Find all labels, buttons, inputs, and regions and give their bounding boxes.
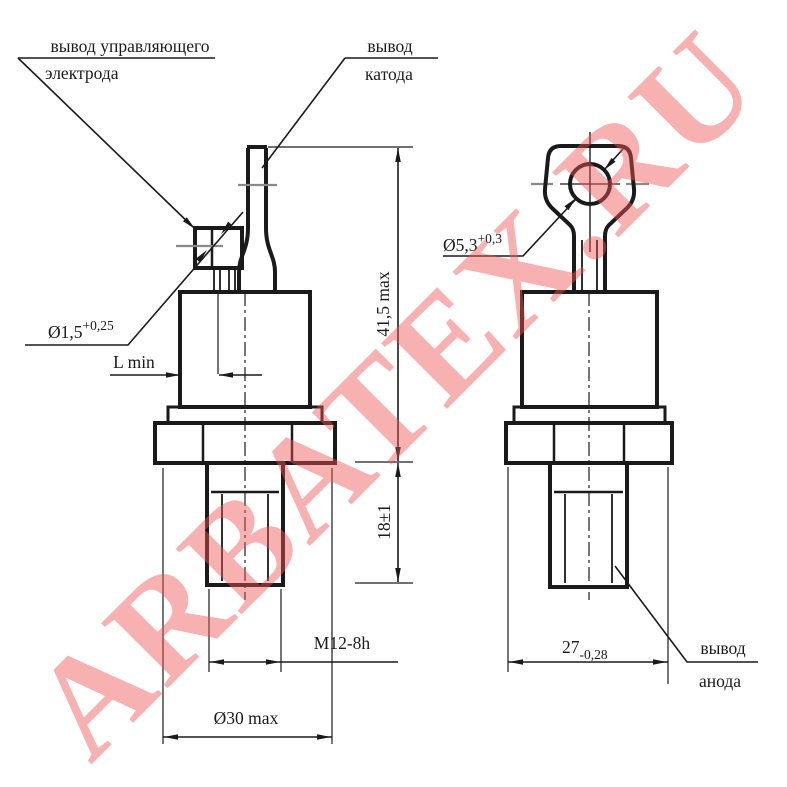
arrow-27-right <box>653 659 667 665</box>
gate-lead-label-line2: электрода <box>45 63 119 83</box>
arrow-18-top <box>395 463 401 477</box>
hole-diameter-dim: Ø5,3+0,3 <box>443 231 502 255</box>
body-diameter-dim: Ø30 max <box>214 708 279 728</box>
left-hex-facets <box>203 423 292 463</box>
flat-width-value: 27 <box>562 637 580 657</box>
anode-lead-label-line2: анода <box>699 671 741 691</box>
thyristor-outline-drawing: вывод управляющего электрода вывод катод… <box>0 0 787 787</box>
gate-lead-label-line1: вывод управляющего <box>51 36 210 56</box>
anode-lead-label-line1: вывод <box>700 638 745 658</box>
total-height-dim: 41,5 max <box>373 271 393 336</box>
arrow-lmin-right <box>166 372 180 378</box>
ext-m12 <box>209 589 281 672</box>
gate-wire-tolerance: +0,25 <box>83 318 114 333</box>
left-view <box>155 147 335 600</box>
gate-wire-diameter-value: Ø1,5 <box>48 322 83 342</box>
arrow-m12-left <box>210 659 224 665</box>
ext-d30 <box>163 468 332 744</box>
dimension-lines <box>18 58 758 744</box>
cathode-lead-rod <box>239 147 275 291</box>
arrow-lmin-left <box>219 372 233 378</box>
arrow-d30-left <box>164 734 178 740</box>
arrow-d30-right <box>317 734 331 740</box>
l-min-dim: L min <box>113 352 155 372</box>
arrow-hole-lower <box>565 198 577 210</box>
arrow-m12-right <box>266 659 280 665</box>
gate-terminal <box>195 228 242 268</box>
hole-diameter-value: Ø5,3 <box>443 235 478 255</box>
technical-drawing-page: вывод управляющего электрода вывод катод… <box>0 0 787 787</box>
arrow-415-top <box>395 148 401 162</box>
cathode-lead-label-line1: вывод <box>367 36 412 56</box>
arrow-18-bottom <box>395 568 401 582</box>
leader-gate-label <box>18 58 215 227</box>
arrow-415-bottom <box>395 447 401 461</box>
cathode-lead-label-line2: катода <box>365 64 413 84</box>
right-view <box>506 132 672 600</box>
gate-wire-diameter-dim: Ø1,5+0,25 <box>48 318 114 342</box>
hole-tolerance: +0,3 <box>478 231 503 246</box>
arrow-27-left <box>509 659 523 665</box>
annotation-text: вывод управляющего электрода вывод катод… <box>45 36 746 728</box>
gate-lead-wires <box>214 268 235 292</box>
stud-length-dim: 18±1 <box>374 504 394 540</box>
left-centerline-ticks <box>176 185 277 246</box>
flat-width-tolerance: -0,28 <box>580 647 608 662</box>
thread-dim: M12-8h <box>314 633 371 653</box>
flat-width-dim: 27-0,28 <box>562 637 608 662</box>
